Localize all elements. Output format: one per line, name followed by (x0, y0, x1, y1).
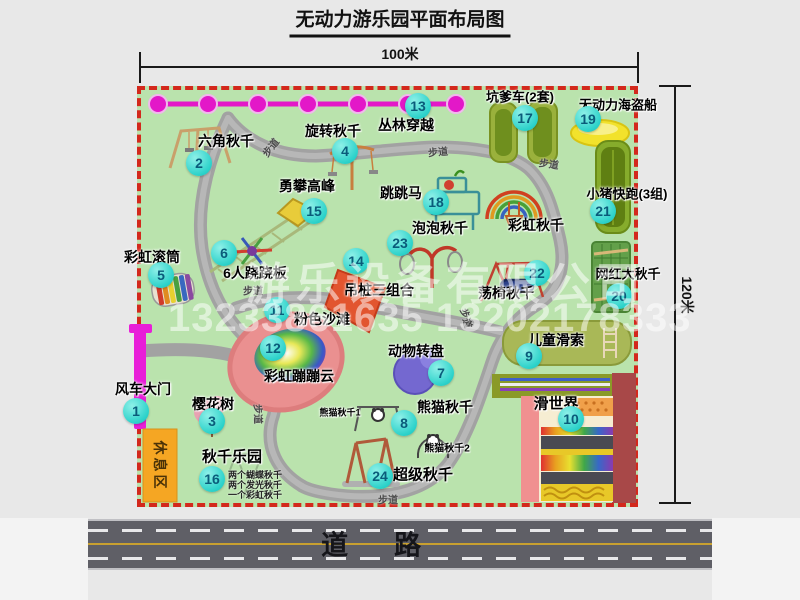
label-climbing-peak: 勇攀高峰 (279, 176, 335, 196)
label-jungle-crossing: 丛林穿越 (378, 115, 434, 135)
label-panda-swing-1: 熊猫秋千1 (319, 406, 360, 419)
path-label-3: 步道 (538, 154, 560, 172)
badge-pig-run: 21 (590, 198, 616, 224)
label-rotating-swing: 旋转秋千 (305, 121, 361, 141)
badge-jump-horse: 18 (423, 189, 449, 215)
watermark-phone: 13233861635 13202178333 (168, 296, 692, 341)
badge-rotating-swing: 4 (332, 138, 358, 164)
path-label-2: 步道 (427, 143, 448, 160)
label-animal-turntable: 动物转盘 (388, 341, 444, 361)
width-dimension-label: 100米 (381, 44, 418, 64)
label-panda-swing: 熊猫秋千 (417, 397, 473, 417)
label-panda-swing-2: 熊猫秋千2 (424, 440, 470, 455)
badge-pirate-ship: 19 (575, 106, 601, 132)
badge-hex-swing: 2 (186, 150, 212, 176)
label-swing-park: 秋千乐园 (202, 446, 262, 467)
label-windmill-gate: 风车大门 (115, 379, 171, 399)
badge-slide-world: 10 (558, 406, 584, 432)
label-rest-area: 休息区 (150, 441, 170, 492)
label-bubble-swing: 泡泡秋千 (412, 218, 468, 238)
path-label-7: 步道 (378, 492, 398, 507)
label-kengdie-cart: 坑爹车(2套) (486, 87, 554, 106)
swing-park-note-3: 一个彩虹秋千 (228, 488, 282, 501)
label-rainbow-swing: 彩虹秋千 (508, 215, 564, 235)
label-super-swing: 超级秋千 (393, 464, 453, 485)
bottom-right-corner (712, 518, 800, 600)
bottom-left-corner (0, 518, 88, 600)
badge-animal-turntable: 7 (428, 360, 454, 386)
page-title: 无动力游乐园平面布局图 (289, 5, 510, 38)
badge-kengdie-cart: 17 (512, 105, 538, 131)
badge-cherry-tree: 3 (199, 408, 225, 434)
label-jump-horse: 跳跳马 (380, 183, 422, 203)
badge-panda-swing: 8 (391, 410, 417, 436)
badge-super-swing: 24 (367, 463, 393, 489)
badge-kids-zipline: 9 (516, 343, 542, 369)
path-label-5: 步道 (251, 404, 267, 425)
badge-seesaw: 6 (211, 240, 237, 266)
label-hex-swing: 六角秋千 (198, 131, 254, 151)
badge-windmill-gate: 1 (123, 398, 149, 424)
badge-swing-park: 16 (199, 466, 225, 492)
badge-climbing-peak: 15 (301, 198, 327, 224)
layout-plan-canvas: 无动力游乐园平面布局图 100米 120米 风车大门 六角秋千 樱花树 旋转秋千… (0, 0, 800, 600)
badge-jungle-crossing: 13 (405, 93, 431, 119)
label-rainbow-cloud: 彩虹蹦蹦云 (264, 366, 334, 386)
road-label: 道路 (321, 524, 467, 563)
badge-rainbow-roller: 5 (148, 262, 174, 288)
